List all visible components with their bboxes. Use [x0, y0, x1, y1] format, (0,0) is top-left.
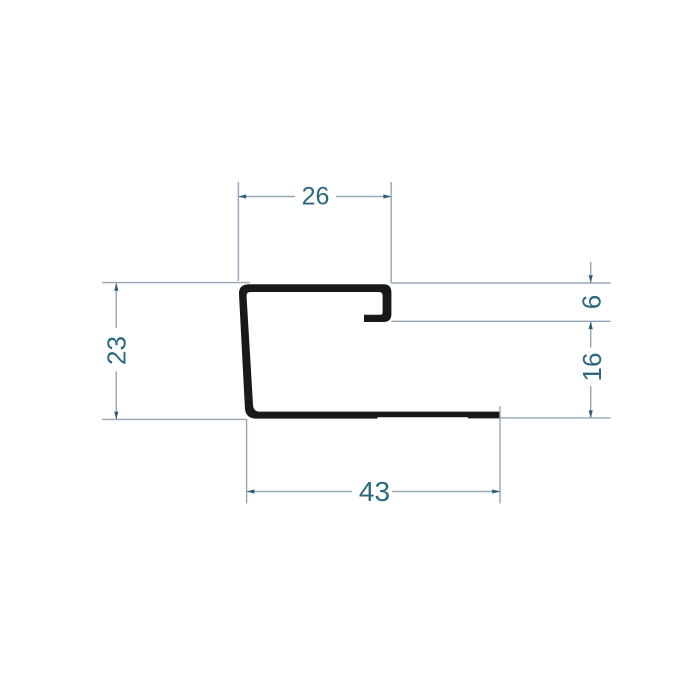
svg-text:16: 16 — [577, 353, 607, 382]
svg-text:26: 26 — [302, 183, 330, 211]
svg-text:43: 43 — [359, 476, 390, 507]
svg-text:6: 6 — [577, 295, 607, 309]
svg-text:23: 23 — [101, 336, 131, 365]
